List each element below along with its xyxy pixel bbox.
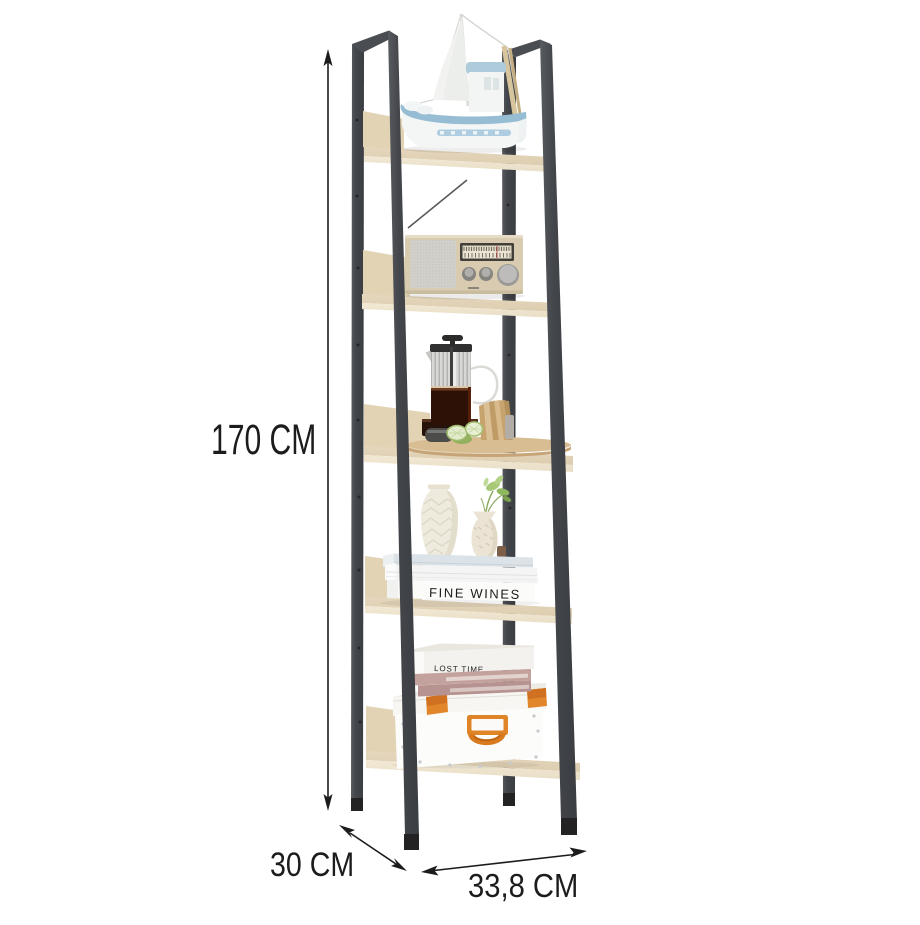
svg-text:30 CM: 30 CM	[270, 846, 354, 884]
svg-text:170 CM: 170 CM	[211, 415, 316, 464]
svg-text:FINE WINES: FINE WINES	[429, 585, 521, 602]
svg-text:33,8 CM: 33,8 CM	[468, 867, 578, 904]
